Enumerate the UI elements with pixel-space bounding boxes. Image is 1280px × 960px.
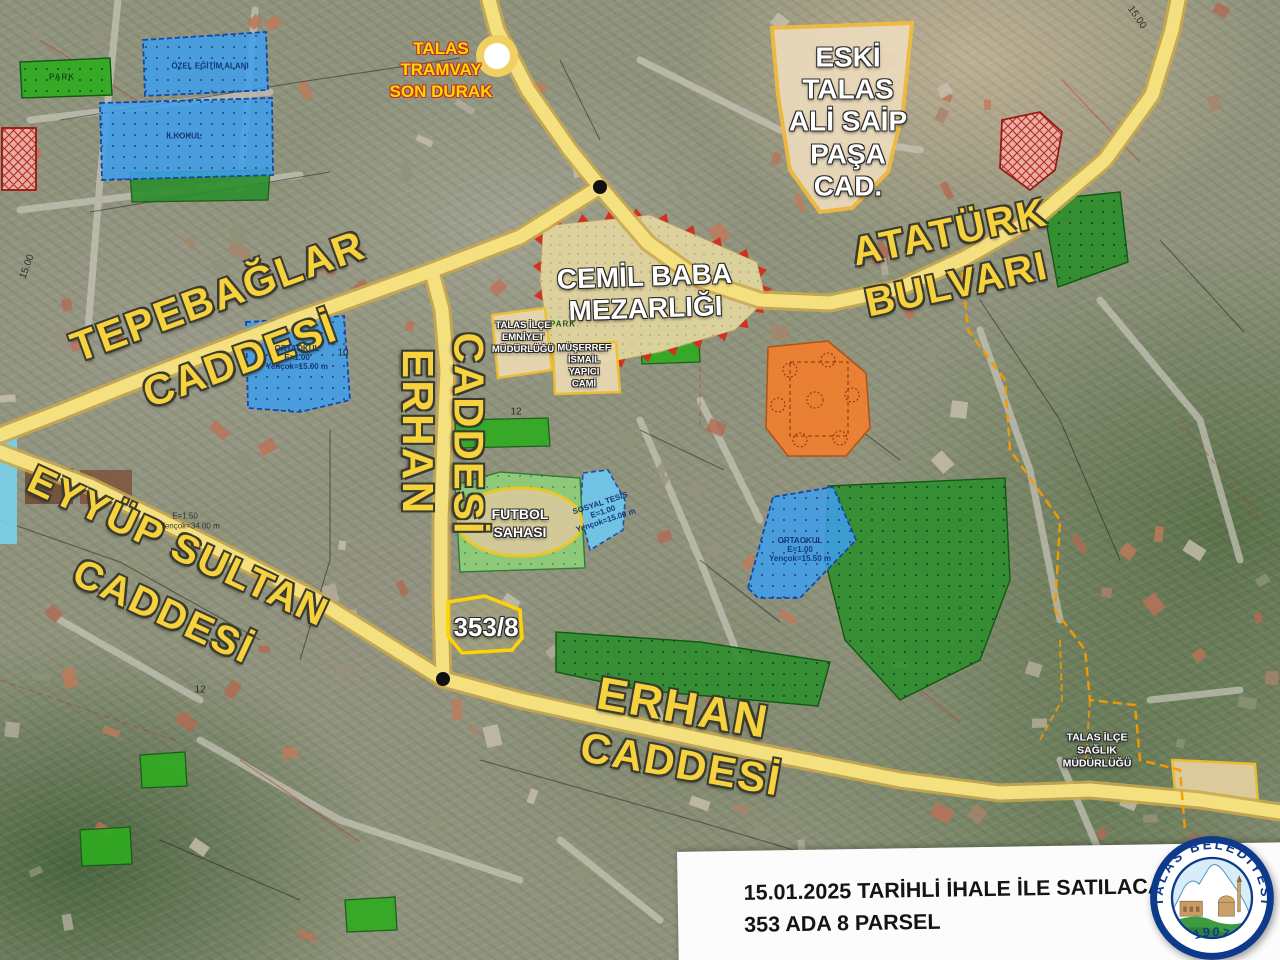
cadastral-note-e: E=1.50 [172, 513, 198, 522]
area-label-cemetery: CEMİL BABA MEZARLIĞI [556, 258, 733, 328]
zoning-label-park2: PARK [550, 321, 576, 330]
street-label-erhan-vertical-2: CADDESİ [446, 332, 491, 535]
zone-orange [766, 341, 870, 456]
parcel-353-8-label: 353/8 [453, 613, 518, 641]
road-width-10: 10 [337, 349, 348, 360]
cadastral-note-y: Yençok=34.00 m [160, 523, 220, 532]
junction-dot [436, 672, 450, 686]
junction-dot [593, 180, 607, 194]
area-label-futbol: FUTBOL SAHASI [492, 505, 549, 541]
area-label-eski-talas: ESKİ TALAS ALİ SAİP PAŞA CAD. [789, 42, 907, 203]
zoning-label-ortaokul-right: ORTAOKUL E=1.00 Yençok=15.50 m [769, 536, 831, 564]
street-label-erhan-vertical-1: ERHAN [393, 349, 441, 515]
map-vector-layer [0, 0, 1280, 960]
map-screenshot: TALAS TRAMVAY SON DURAK ESKİ TALAS ALİ S… [0, 0, 1280, 960]
road-width-12: 12 [510, 408, 521, 419]
zoning-label-ilkokul: İLKOKUL [166, 131, 202, 140]
zoning-label-ortaokul-left: ORTAOKUL E=1.00 Yençok=15.00 m [266, 344, 328, 372]
tram-stop-label: TALAS TRAMVAY SON DURAK [390, 38, 493, 102]
zoning-label-park: PARK [49, 74, 75, 83]
zoning-label-ozel-egitim: ÖZEL EĞİTİM ALANI [171, 61, 248, 70]
talas-municipality-logo: TALAS BELEDİYESİ 1907 [1148, 834, 1276, 960]
area-label-emniyet: TALAS İLÇE EMNİYET MÜDÜRLÜĞÜ [492, 320, 554, 356]
road-width-12b: 12 [194, 686, 205, 697]
area-label-cami: MÜŞERREF İSMAİL YAPICI CAMİ [557, 342, 610, 390]
area-label-saglik: TALAS İLÇE SAĞLIK MÜDÜRLÜĞÜ [1063, 731, 1132, 770]
